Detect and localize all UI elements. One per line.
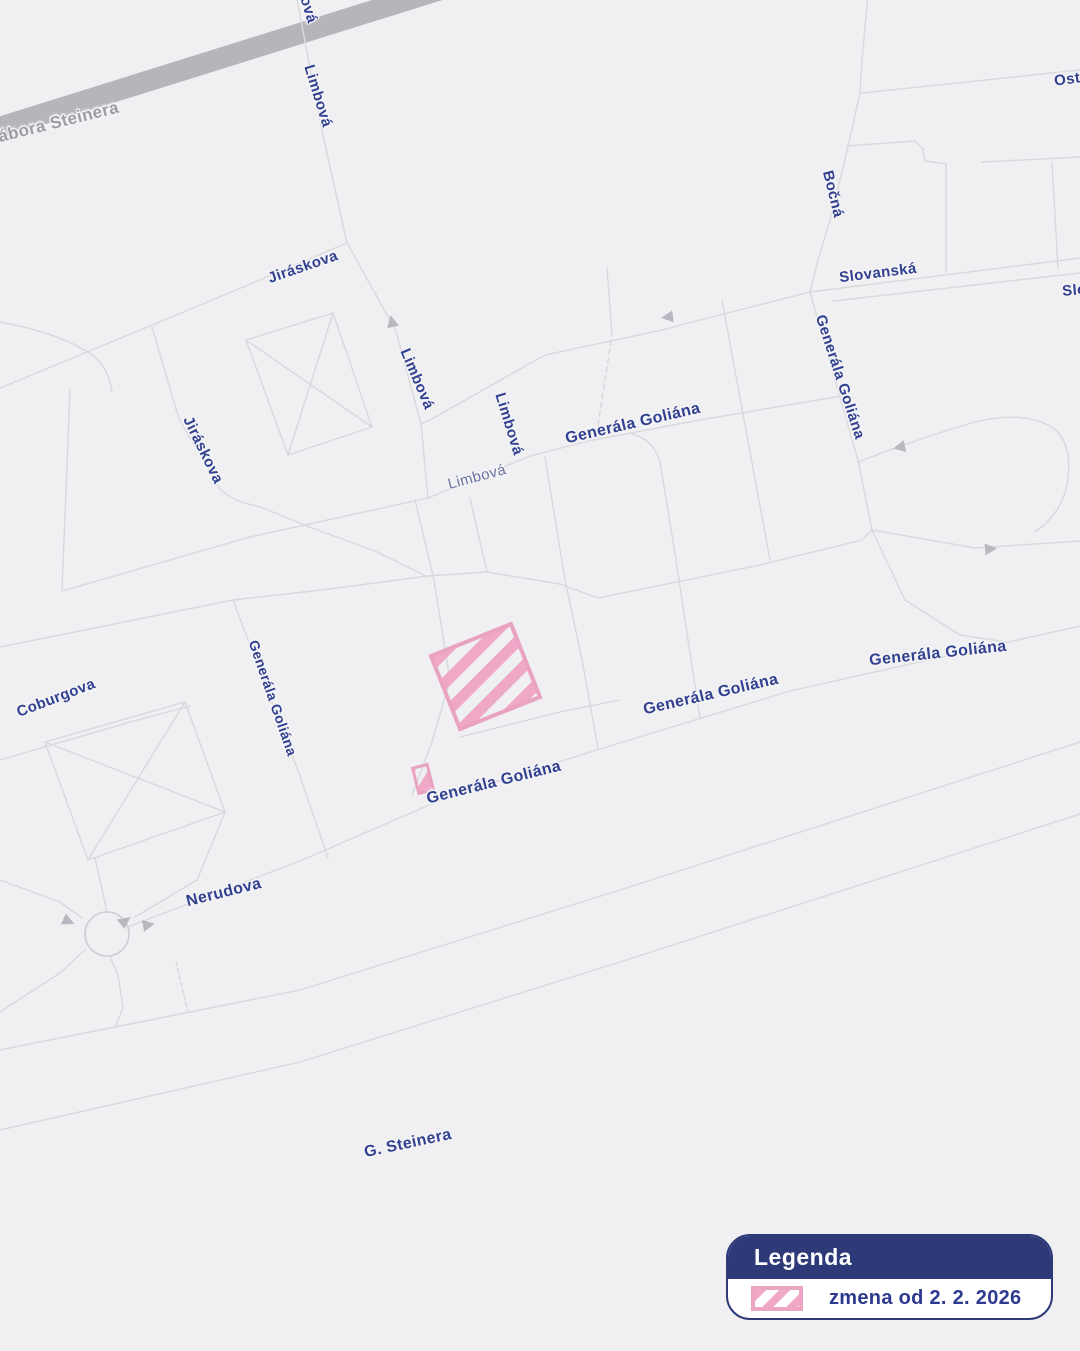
major-road-gabora-steinera: [0, 0, 452, 131]
one-way-arrow-icon: [985, 543, 998, 556]
map-viewport[interactable]: Gábora SteineraLimbováLimbováJiráskovaJi…: [0, 0, 1080, 1351]
legend-item-label: zmena od 2. 2. 2026: [829, 1287, 1021, 1310]
one-way-arrow-icon: [660, 310, 674, 324]
street-network: [0, 0, 1080, 1130]
change-area-small-polygon[interactable]: [413, 765, 434, 794]
legend-item: zmena od 2. 2. 2026: [728, 1279, 1051, 1318]
legend-hatch-swatch-icon: [751, 1286, 803, 1311]
one-way-arrow-icon: [117, 912, 135, 929]
legend-title: Legenda: [728, 1236, 1051, 1279]
one-way-arrow-icon: [61, 913, 77, 929]
one-way-arrow-icon: [142, 918, 156, 932]
legend-panel: Legenda zmena od 2. 2. 2026: [726, 1234, 1053, 1320]
one-way-arrow-icon: [892, 440, 906, 454]
change-area-polygon[interactable]: [431, 624, 540, 729]
map-canvas[interactable]: [0, 0, 1080, 1351]
one-way-arrow-icon: [385, 314, 399, 328]
